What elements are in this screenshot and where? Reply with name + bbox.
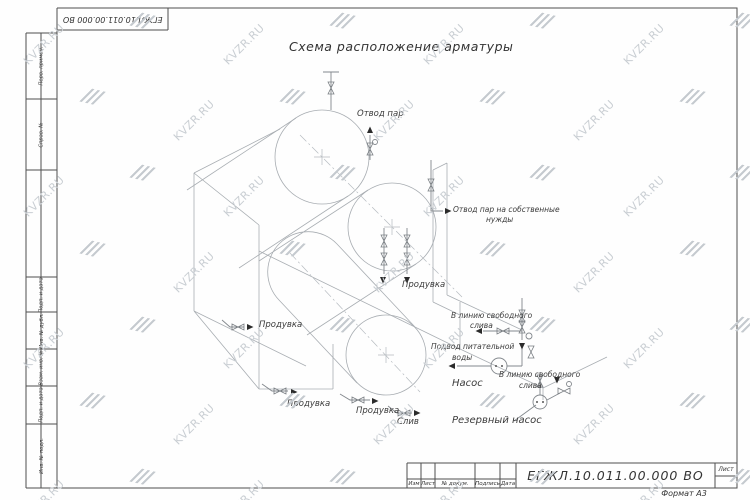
title-block-header-cell: Подпись xyxy=(475,479,500,488)
sidebar-field: Подп. и дата xyxy=(26,277,57,312)
sidebar-field-label: Перв. примен. xyxy=(39,47,45,86)
sidebar-field-label: Инв. № дубл. xyxy=(39,313,45,349)
sidebar-field-label: Подп. и дата xyxy=(39,387,45,422)
sidebar-field: Взам. инв. № xyxy=(26,349,57,386)
sidebar-field: Инв. № подл. xyxy=(26,424,57,488)
sidebar-field-label: Справ. № xyxy=(39,122,45,147)
sidebar-field-label: Инв. № подл. xyxy=(39,438,45,474)
sidebar-field-label: Подп. и дата xyxy=(39,277,45,312)
top-stamp-designation: ЕГЖЛ.10.011.00.000 ВО xyxy=(63,15,163,24)
title-block-header-cell: Лист xyxy=(421,479,435,488)
sidebar-field: Перв. примен. xyxy=(26,33,57,99)
sidebar-field: Инв. № дубл. xyxy=(26,312,57,349)
title-block-header-cell: Дата xyxy=(500,479,516,488)
sidebar-field: Справ. № xyxy=(26,99,57,170)
sidebar-field: Подп. и дата xyxy=(26,386,57,424)
title-block-header-cell: Изм xyxy=(407,479,421,488)
top-corner-stamp: ЕГЖЛ.10.011.00.000 ВО xyxy=(57,8,168,30)
sidebar-field-label: Взам. инв. № xyxy=(39,350,45,385)
drawing-sheet: Схема расположение арматуры Отвод парОтв… xyxy=(0,0,750,500)
sheet-number-label: Лист xyxy=(715,463,737,476)
title-block-header-cell: № докум. xyxy=(435,479,475,488)
format-label: Формат А3 xyxy=(654,487,714,499)
title-block-designation: ЕГЖЛ.10.011.00.000 ВО xyxy=(516,463,715,488)
frame-chrome: ЕГЖЛ.10.011.00.000 ВО Перв. примен.Справ… xyxy=(0,0,750,500)
